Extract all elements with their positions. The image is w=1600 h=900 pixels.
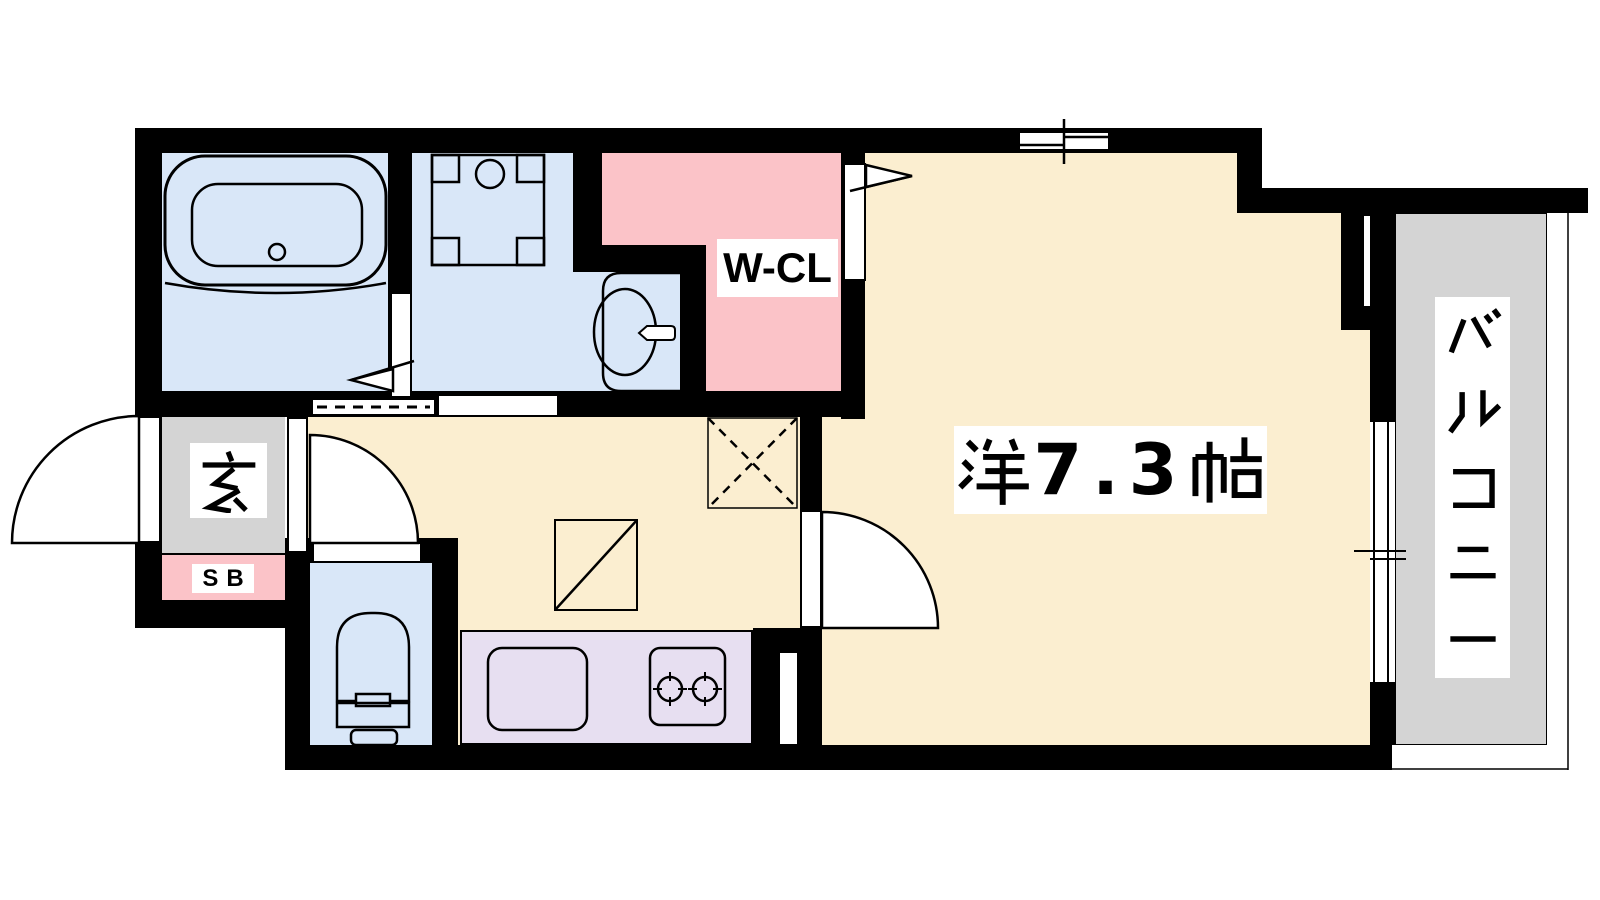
kanji-gen-graphic (197, 449, 261, 513)
shoe-box-label: SB (192, 564, 254, 593)
kana-ko-graphic (1444, 457, 1502, 519)
washroom-sliding-door-opening (438, 395, 558, 416)
washbasin-nook-floor (573, 272, 680, 391)
shoe-box-divider-line (162, 553, 285, 555)
balcony-label-text: バルコニー (0, 0, 1, 1)
window-top-sliding (1018, 131, 1110, 151)
walk-in-closet-label-text: W-CL (723, 247, 832, 289)
balcony-sliding-door-gap (1370, 422, 1392, 682)
bathroom-floor (162, 153, 388, 391)
kitchen-counter (460, 630, 753, 745)
wall-bottom (285, 745, 1392, 770)
wall-kitchen-main-upper (800, 417, 822, 510)
kana-ba-graphic (1444, 305, 1502, 367)
kana-ni-graphic (1444, 532, 1502, 594)
main-room-doorway (800, 510, 822, 628)
closet-door-leaf (843, 163, 866, 281)
washroom-sliding-door-pocket (312, 399, 435, 415)
bathroom-door-leaf (390, 292, 412, 398)
balcony-label (1435, 297, 1510, 678)
wall-balcony-stub-bottom (1370, 682, 1395, 745)
wall-shoebox-bottom (135, 600, 310, 628)
floor-plan: 洋7.3帖 玄 バルコニー (0, 0, 1600, 900)
wall-balcony-stub-top (1370, 330, 1395, 422)
kanji-jou-graphic (1190, 433, 1264, 507)
wall-washroom-closet (573, 153, 602, 248)
room-size-digits: 7.3 (1033, 435, 1187, 505)
toilet-floor (310, 563, 432, 745)
hall-doorway (287, 417, 308, 553)
kana-ru-graphic (1444, 381, 1502, 443)
walk-in-closet-floor-upper (602, 153, 841, 245)
entrance-doorway (137, 416, 161, 543)
wall-nook-closet (680, 272, 706, 393)
entrance-label (190, 443, 267, 518)
wall-toilet-west (285, 538, 310, 770)
wall-basin-band (573, 245, 706, 272)
entrance-label-text: 玄 (0, 0, 1, 1)
walk-in-closet-label: W-CL (717, 239, 838, 297)
main-room-floor-upper (865, 153, 1237, 417)
hall-door-panel-open (312, 542, 422, 563)
kanji-you-graphic (957, 433, 1031, 507)
wall-upper-right (1237, 188, 1588, 213)
washroom-floor (412, 153, 573, 391)
main-room-label-text: 洋7.3帖 (0, 0, 1, 1)
main-room-label: 7.3 (954, 426, 1267, 514)
shoe-box-label-text: SB (194, 567, 251, 591)
kana-chouon-graphic (1444, 608, 1502, 670)
wall-toilet-east (432, 538, 458, 747)
entrance-door-arc (12, 416, 139, 543)
counter-end-slot (779, 652, 798, 745)
window-slot-right (1363, 215, 1371, 307)
